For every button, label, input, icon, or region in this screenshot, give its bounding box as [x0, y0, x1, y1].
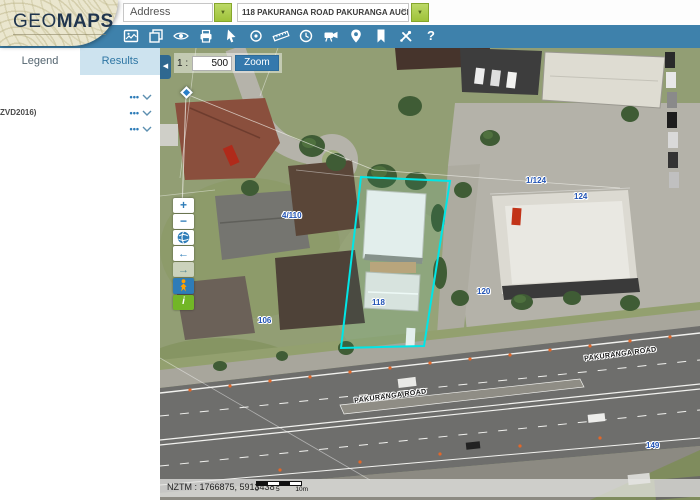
layers-button[interactable] [147, 27, 165, 45]
identify-button[interactable] [247, 27, 265, 45]
zoom-out-button[interactable]: − [173, 214, 194, 229]
legend-layer-row: ••• [0, 122, 160, 137]
measure-button[interactable] [272, 27, 290, 45]
search-type-dropdown-button[interactable]: ▼ [214, 3, 232, 22]
layer-menu-button[interactable]: ••• [130, 106, 139, 120]
layer-menu-button[interactable]: ••• [130, 90, 139, 104]
visibility-button[interactable] [172, 27, 190, 45]
logo-text-maps: MAPS [57, 11, 114, 32]
tools-button[interactable] [397, 27, 415, 45]
scalebar-label-10m: 10m [295, 486, 308, 493]
parcel-label-4-110: 4/110 [282, 211, 302, 220]
scale-input[interactable]: 500 [192, 56, 232, 71]
dropdown-arrow-icon: ▼ [417, 10, 423, 16]
camera-icon [322, 27, 340, 45]
legend-layer-row: ZVD2016) ••• [0, 106, 160, 121]
select-button[interactable] [222, 27, 240, 45]
basemap-button[interactable] [122, 27, 140, 45]
previous-extent-button[interactable]: ← [173, 246, 194, 261]
next-extent-button[interactable]: → [173, 262, 194, 277]
scalebar-label-0: 0 [255, 486, 259, 493]
print-icon [197, 27, 215, 45]
map-controls: + − ← → i [173, 198, 194, 311]
ruler-icon [272, 27, 290, 45]
sidebar-collapse-button[interactable]: ◀ [160, 55, 171, 79]
basemap-icon [122, 27, 140, 45]
streetview-button[interactable] [322, 27, 340, 45]
target-icon [247, 27, 265, 45]
search-input[interactable]: 118 PAKURANGA ROAD PAKURANGA AUCKLAND 20… [237, 3, 409, 22]
scalebar: 0 5 10m [256, 481, 304, 494]
legend-layer-row: ••• [0, 90, 160, 105]
scale-prefix-label: 1 : [177, 58, 188, 69]
logo-text-geo: GEO [13, 11, 57, 32]
parcel-label-120: 120 [477, 287, 490, 296]
map-pin-icon [347, 27, 365, 45]
parcel-label-1-124: 1/124 [526, 176, 546, 185]
parcel-label-149: 149 [646, 441, 659, 450]
logo-underline [13, 34, 106, 35]
cursor-icon [222, 27, 240, 45]
bookmark-icon [372, 27, 390, 45]
info-button[interactable]: i [173, 295, 194, 310]
tools-icon [397, 27, 415, 45]
help-button[interactable]: ? [422, 27, 440, 45]
search-dropdown-button[interactable]: ▼ [411, 3, 429, 22]
parcel-label-118: 118 [372, 298, 385, 307]
legend-panel: Legend Results ••• ZVD2016) ••• [0, 48, 160, 500]
bookmark-button[interactable] [372, 27, 390, 45]
tab-legend[interactable]: Legend [0, 48, 80, 75]
layer-menu-button[interactable]: ••• [130, 122, 139, 136]
search-type-select[interactable]: Address [123, 3, 213, 22]
locate-button[interactable] [347, 27, 365, 45]
chevron-down-icon[interactable] [142, 125, 152, 133]
parcel-label-124: 124 [574, 192, 587, 201]
globe-icon [177, 231, 190, 244]
zoom-in-button[interactable]: + [173, 198, 194, 213]
layers-icon [147, 27, 165, 45]
scale-widget: 1 : 500 Zoom [174, 53, 282, 73]
scalebar-label-5: 5 [276, 486, 280, 493]
panel-tabs: Legend Results [0, 48, 160, 75]
tab-results[interactable]: Results [80, 48, 160, 75]
geomaps-app: 4/110 1/124 124 120 118 106 149 PAKURANG… [0, 0, 700, 500]
streetview-pegman-button[interactable] [173, 278, 194, 294]
map-statusbar: NZTM : 1766875, 5913438 0 5 10m [160, 479, 700, 497]
map-canvas[interactable]: 4/110 1/124 124 120 118 106 149 PAKURANG… [160, 48, 700, 500]
clock-icon [297, 27, 315, 45]
print-button[interactable] [197, 27, 215, 45]
eye-icon [172, 27, 190, 45]
full-extent-button[interactable] [173, 230, 194, 245]
pegman-icon [179, 279, 188, 292]
aerial-imagery [160, 48, 700, 500]
history-button[interactable] [297, 27, 315, 45]
parcel-label-106: 106 [258, 316, 271, 325]
layer-label-zvd2016: ZVD2016) [0, 108, 36, 117]
clear-search-icon[interactable]: × [401, 6, 407, 18]
dropdown-arrow-icon: ▼ [220, 10, 226, 16]
zoom-button[interactable]: Zoom [235, 55, 279, 71]
chevron-down-icon[interactable] [142, 109, 152, 117]
chevron-down-icon[interactable] [142, 93, 152, 101]
